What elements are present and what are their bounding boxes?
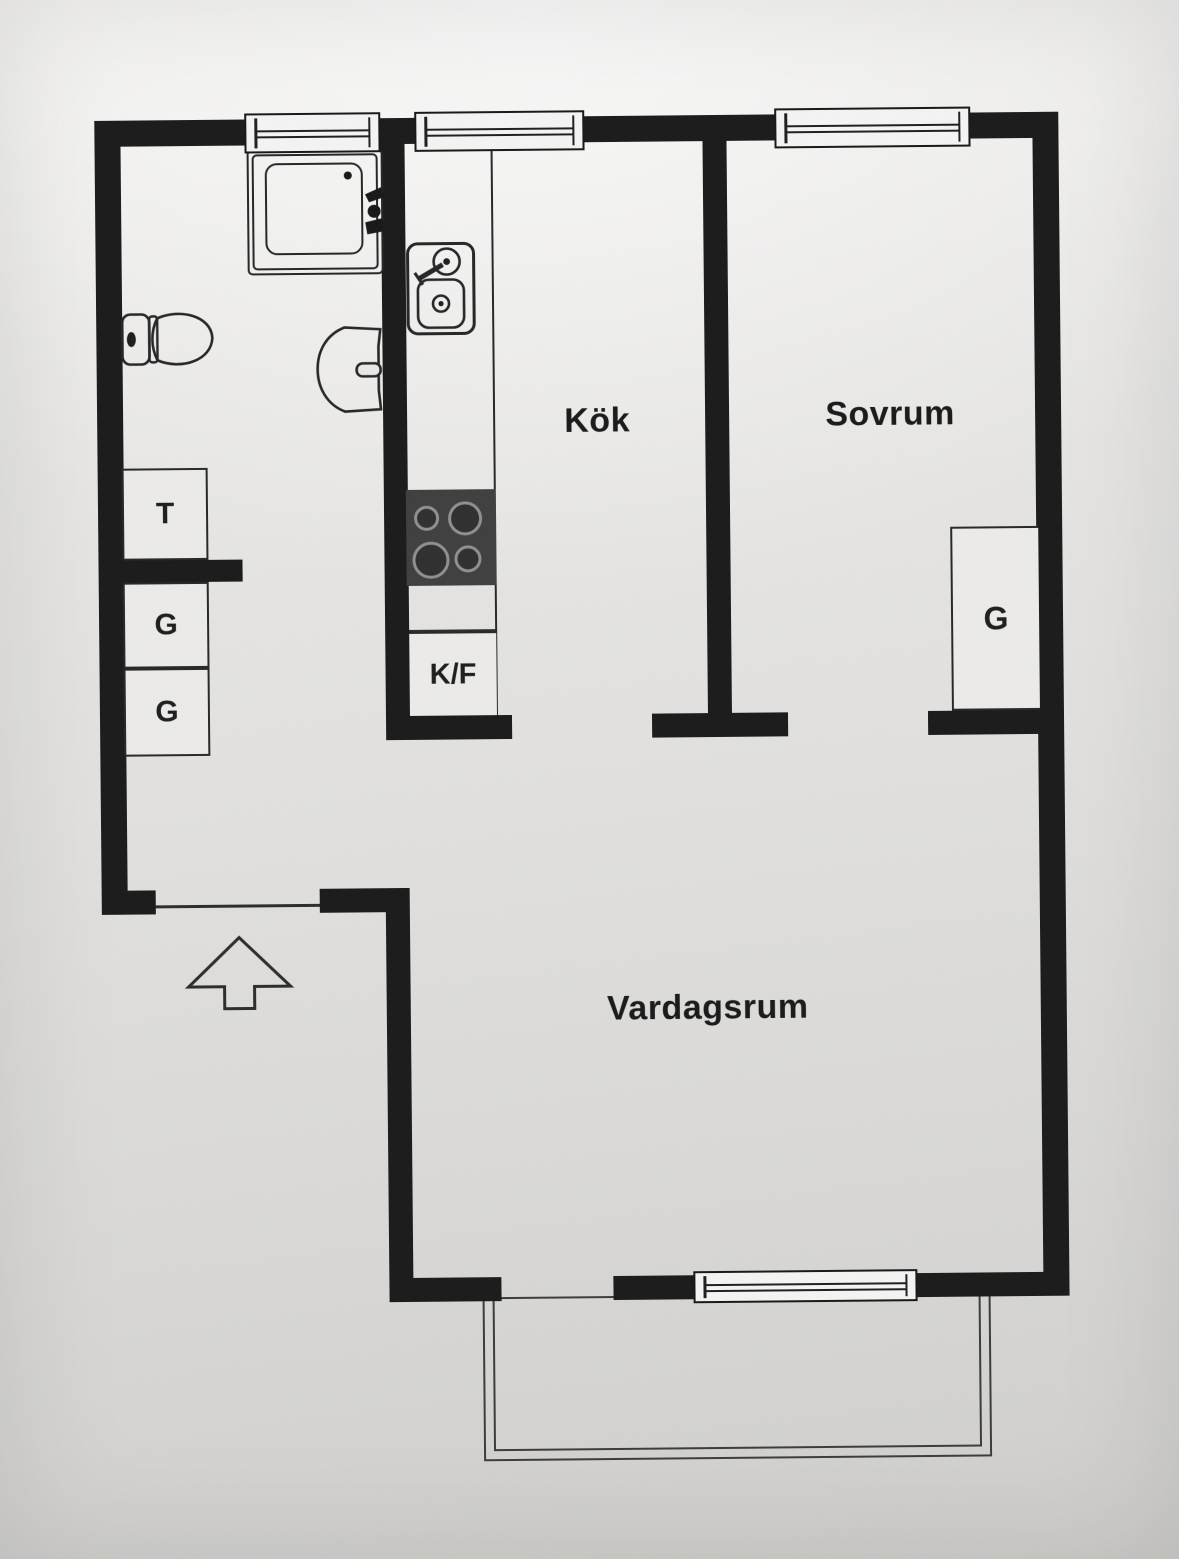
wall-kitchen-bedroom	[702, 141, 732, 737]
room-label-livingroom: Vardagsrum	[607, 988, 809, 1029]
wall-livingroom-bottom-2	[613, 1275, 693, 1300]
room-label-kitchen: Kök	[564, 401, 630, 441]
window-livingroom	[693, 1269, 917, 1303]
window-glass-line	[255, 135, 369, 138]
bedroom-wardrobe: G	[950, 526, 1040, 711]
drying-cabinet: T	[122, 468, 209, 561]
floor-plan-photo: T G G K/F G Kök Sovrum Vardagsrum	[0, 0, 1179, 1559]
window-bathroom	[244, 112, 380, 153]
window-end-cap	[905, 1274, 908, 1296]
window-glass-line	[425, 127, 573, 130]
shower-frame	[252, 153, 379, 270]
washbasin-icon	[314, 324, 383, 415]
stove-burner	[448, 501, 482, 535]
stove-burner	[454, 545, 481, 572]
window-end-cap	[703, 1276, 706, 1298]
window-glass-line	[705, 1288, 907, 1292]
stove	[406, 489, 497, 586]
balcony	[483, 1292, 993, 1461]
wall-kitchen-stub	[386, 715, 512, 740]
window-glass-line	[425, 133, 573, 136]
wall-bathroom-stub	[122, 560, 242, 583]
wall-kitchen-bedroom-stub	[652, 712, 788, 737]
window-glass-line	[785, 124, 959, 128]
shower-tray	[265, 162, 364, 255]
hall-wardrobe-2: G	[124, 668, 211, 757]
entry-arrow-icon	[184, 934, 295, 1013]
stove-burner	[412, 542, 449, 579]
wall-livingroom-left	[386, 888, 414, 1302]
window-glass-line	[785, 130, 959, 134]
wall-entry-left	[102, 890, 156, 915]
apartment-plan: T G G K/F G Kök Sovrum Vardagsrum	[0, 0, 1179, 1559]
stove-burner	[414, 506, 439, 531]
hall-wardrobe-1-label: G	[154, 608, 178, 642]
window-end-cap	[784, 113, 787, 143]
fridge-freezer-label: K/F	[430, 658, 477, 691]
wall-livingroom-bottom-1	[389, 1277, 501, 1302]
window-end-cap	[424, 117, 427, 147]
kitchen-sink-icon	[405, 241, 476, 336]
window-glass-line	[704, 1282, 906, 1286]
window-end-cap	[254, 118, 257, 148]
window-end-cap	[958, 112, 961, 142]
shower-drain	[344, 171, 352, 179]
balcony-inner-rail	[493, 1292, 982, 1451]
wall-bedroom-stub	[928, 710, 1040, 735]
window-end-cap	[572, 115, 575, 145]
window-kitchen	[414, 110, 584, 152]
window-bedroom	[774, 107, 970, 149]
fridge-freezer: K/F	[409, 631, 497, 716]
toilet-icon	[118, 308, 217, 371]
bedroom-wardrobe-label: G	[983, 600, 1008, 637]
hall-wardrobe-2-label: G	[155, 695, 179, 729]
hall-wardrobe-1: G	[123, 582, 210, 669]
shower-mixer-icon	[363, 186, 387, 238]
room-label-bedroom: Sovrum	[825, 394, 955, 434]
window-end-cap	[368, 117, 371, 147]
window-glass-line	[255, 129, 369, 132]
entry-threshold	[156, 904, 320, 909]
drying-cabinet-label: T	[156, 497, 175, 531]
